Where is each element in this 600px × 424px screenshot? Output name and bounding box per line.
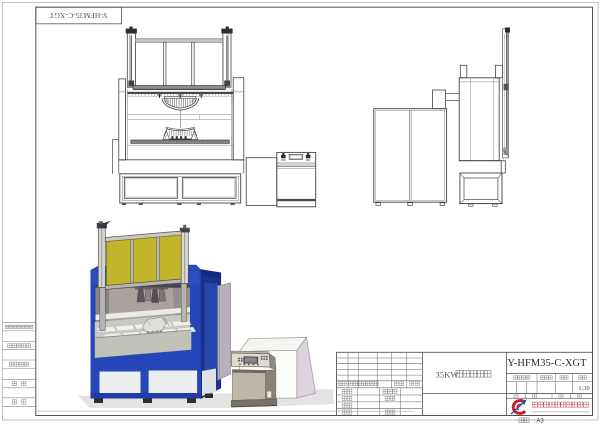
svg-text:35KW: 35KW [436, 369, 460, 379]
svg-text:: A3: : A3 [533, 418, 544, 424]
svg-text:1:30: 1:30 [578, 385, 589, 392]
svg-text:1: 1 [569, 394, 572, 399]
svg-text:1: 1 [524, 394, 527, 399]
svg-text:Y-HFM35-C-XGT: Y-HFM35-C-XGT [507, 358, 587, 369]
svg-text:Y-HFM35-C-XGT: Y-HFM35-C-XGT [49, 11, 108, 20]
